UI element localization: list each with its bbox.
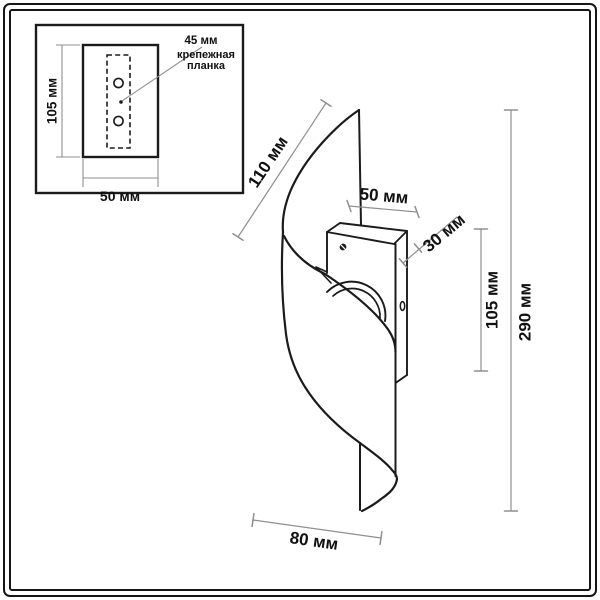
dim-label-110: 110 мм [244, 133, 291, 191]
inset-label-105: 105 мм [45, 78, 60, 124]
dim-label-105: 105 мм [483, 271, 502, 329]
dim-label-290: 290 мм [516, 283, 535, 341]
inset-label-50: 50 мм [100, 188, 140, 204]
side-screw-hole [400, 302, 404, 311]
shade-fold-line [316, 267, 331, 283]
lamp-head-inner-arc [333, 289, 380, 318]
shade-back-edge [359, 110, 361, 225]
inset-label-45: 45 мм [184, 35, 217, 47]
inset-caption-line2: планка [187, 60, 226, 72]
dim-label-80: 80 мм [289, 528, 340, 554]
dim-label-30: 30 мм [419, 210, 469, 256]
dim-label-50: 50 мм [359, 184, 409, 207]
lamp-drawing [282, 110, 407, 511]
mounting-plate-inset: 105 мм 50 мм 45 мм крепежная планка [36, 25, 243, 204]
mounting-box-bottom-right-edge [396, 375, 408, 383]
dim-ticks-30 [399, 244, 421, 267]
mounting-box-top-face [327, 223, 407, 244]
wall-lamp-dimension-diagram: 110 мм 50 мм 30 мм 105 мм 290 мм 80 мм [0, 0, 600, 600]
technical-drawing-canvas: 110 мм 50 мм 30 мм 105 мм 290 мм 80 мм [0, 0, 600, 600]
